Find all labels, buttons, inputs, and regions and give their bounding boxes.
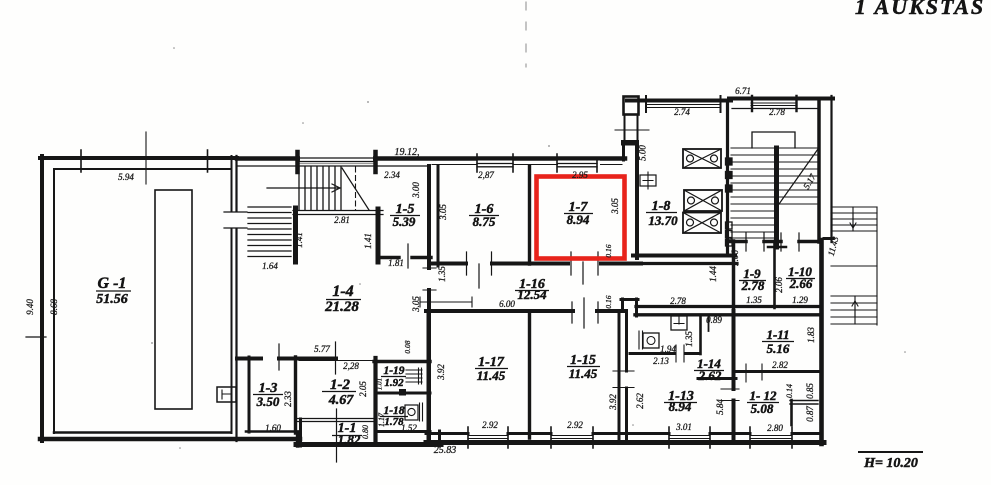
svg-text:5.17: 5.17 — [801, 172, 818, 191]
svg-text:5.84: 5.84 — [715, 399, 725, 415]
svg-text:0.85: 0.85 — [805, 383, 815, 399]
svg-text:1-8: 1-8 — [652, 199, 671, 214]
svg-text:11.45: 11.45 — [569, 366, 598, 381]
svg-text:2,87: 2,87 — [478, 170, 494, 180]
svg-text:0.89: 0.89 — [706, 315, 722, 325]
svg-text:11.45: 11.45 — [477, 368, 506, 383]
svg-text:1.52: 1.52 — [401, 423, 417, 433]
svg-text:2.82: 2.82 — [772, 360, 788, 370]
svg-text:0.16: 0.16 — [604, 295, 613, 308]
svg-text:5.77: 5.77 — [314, 344, 330, 354]
svg-text:2.81: 2.81 — [334, 215, 350, 225]
svg-text:1.35: 1.35 — [746, 295, 762, 305]
svg-text:2.74: 2.74 — [674, 107, 690, 117]
svg-text:51.56: 51.56 — [96, 292, 128, 307]
svg-text:2,28: 2,28 — [343, 361, 359, 371]
svg-text:2.80: 2.80 — [767, 423, 783, 433]
svg-text:1.92: 1.92 — [384, 377, 404, 389]
svg-text:2.33: 2.33 — [283, 391, 293, 407]
svg-text:2.34: 2.34 — [384, 170, 400, 180]
svg-text:6.71: 6.71 — [735, 86, 751, 96]
svg-text:8.75: 8.75 — [473, 214, 496, 229]
svg-text:1.35: 1.35 — [437, 266, 447, 282]
svg-text:1.82: 1.82 — [338, 432, 361, 447]
svg-text:5.00: 5.00 — [638, 145, 648, 161]
svg-text:2.78: 2.78 — [769, 107, 785, 117]
svg-text:19.12,: 19.12, — [395, 147, 420, 158]
svg-text:2.92: 2.92 — [567, 420, 583, 430]
svg-text:2.13: 2.13 — [653, 356, 669, 366]
svg-text:2.05: 2.05 — [358, 381, 368, 397]
svg-text:4.67: 4.67 — [328, 393, 355, 408]
svg-text:0.14: 0.14 — [785, 384, 794, 398]
svg-text:2.92: 2.92 — [482, 420, 498, 430]
svg-text:0.08: 0.08 — [403, 340, 412, 353]
svg-text:1-19: 1-19 — [383, 365, 404, 377]
svg-text:2.06: 2.06 — [774, 277, 784, 293]
svg-text:5.16: 5.16 — [767, 341, 790, 356]
svg-text:5.08: 5.08 — [751, 401, 774, 416]
svg-text:1.29: 1.29 — [792, 295, 808, 305]
svg-text:1.17: 1.17 — [377, 412, 386, 427]
svg-text:1 AUKŠTAS: 1 AUKŠTAS — [855, 0, 985, 19]
svg-text:1-11: 1-11 — [766, 327, 789, 342]
svg-text:0.87: 0.87 — [805, 406, 815, 422]
svg-text:1.60: 1.60 — [265, 423, 281, 433]
svg-text:12.54: 12.54 — [517, 287, 547, 302]
svg-text:3.92: 3.92 — [436, 364, 446, 381]
svg-text:1-2: 1-2 — [330, 377, 350, 393]
svg-text:3.00: 3.00 — [411, 182, 421, 199]
svg-text:25.83: 25.83 — [434, 445, 457, 456]
svg-text:3.92: 3.92 — [608, 394, 618, 411]
svg-text:3.05: 3.05 — [438, 204, 448, 221]
svg-text:1.41: 1.41 — [294, 232, 304, 248]
svg-text:3.05: 3.05 — [411, 296, 421, 313]
svg-text:1.83: 1.83 — [806, 327, 816, 343]
svg-text:3.50: 3.50 — [256, 394, 280, 409]
svg-text:H= 10.20: H= 10.20 — [863, 456, 918, 471]
svg-text:0.80: 0.80 — [361, 425, 370, 439]
svg-text:8.68: 8.68 — [49, 299, 59, 315]
svg-text:1.41: 1.41 — [363, 233, 373, 249]
svg-text:1.64: 1.64 — [262, 261, 278, 271]
svg-text:13.70: 13.70 — [648, 213, 678, 228]
svg-text:3.01: 3.01 — [675, 422, 692, 432]
svg-text:2.95: 2.95 — [572, 170, 588, 180]
svg-text:1.35: 1.35 — [684, 331, 694, 347]
svg-text:1.01: 1.01 — [376, 378, 384, 390]
svg-text:6.00: 6.00 — [499, 299, 515, 309]
svg-text:1-4: 1-4 — [332, 283, 353, 300]
svg-text:8.94: 8.94 — [669, 399, 692, 414]
svg-text:21.28: 21.28 — [324, 299, 359, 315]
svg-text:1.44: 1.44 — [708, 266, 718, 282]
svg-text:0.16: 0.16 — [604, 244, 613, 257]
svg-text:3.05: 3.05 — [610, 198, 620, 215]
svg-text:8.94: 8.94 — [567, 212, 590, 227]
svg-text:5.39: 5.39 — [393, 214, 416, 229]
svg-text:G -1: G -1 — [98, 275, 127, 292]
svg-text:1.81: 1.81 — [388, 258, 404, 268]
svg-text:9.40: 9.40 — [25, 299, 35, 315]
svg-text:2.62: 2.62 — [635, 393, 645, 409]
svg-text:2.78: 2.78 — [670, 296, 686, 306]
svg-text:2.06: 2.06 — [730, 250, 740, 266]
svg-text:1.94: 1.94 — [660, 344, 676, 354]
svg-text:5.94: 5.94 — [118, 172, 134, 182]
